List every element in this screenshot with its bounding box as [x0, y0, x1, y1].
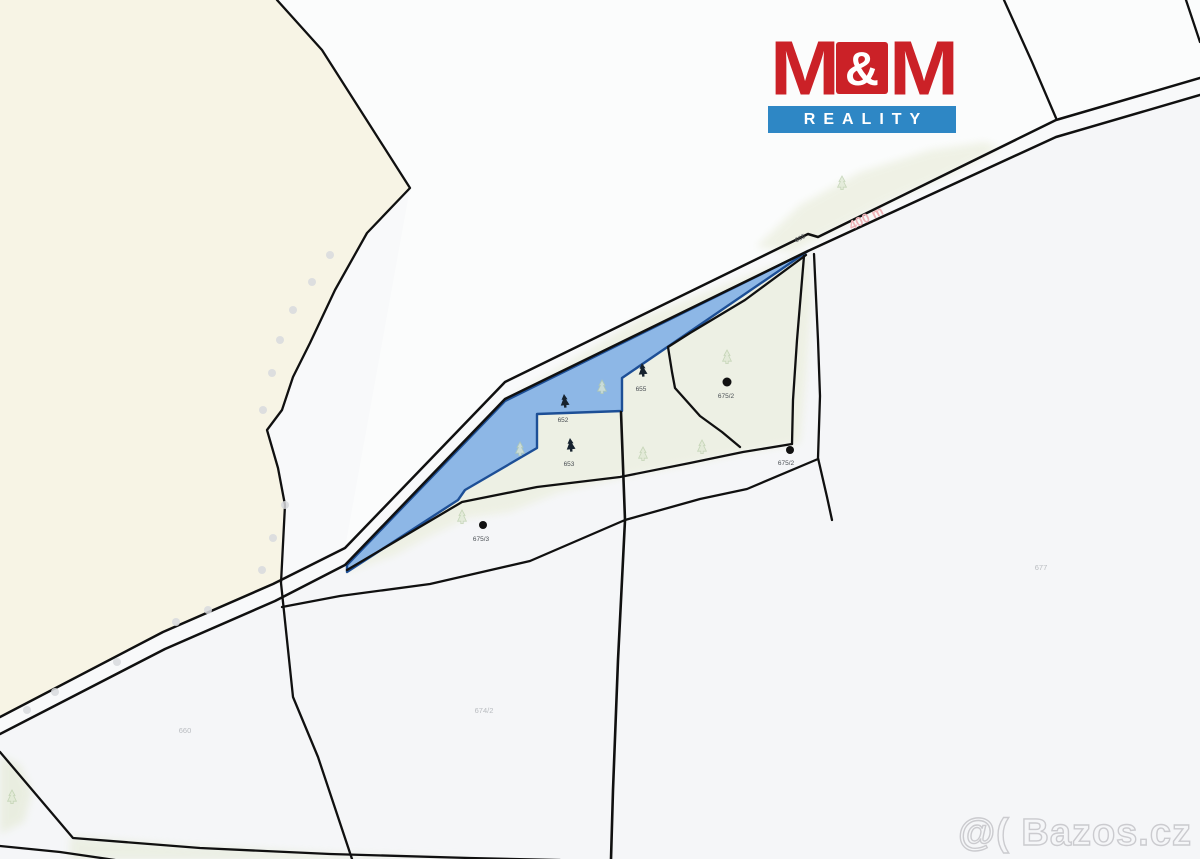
tree-circle-icon [723, 378, 732, 387]
parcel-number: 675/2 [778, 460, 795, 467]
mm-reality-logo: M & M REALITY [768, 31, 956, 133]
bazos-watermark: @( Bazos.cz [958, 812, 1192, 855]
parcel-number-faint: 660 [179, 726, 192, 735]
parcel-number-faint: 674/2 [475, 706, 494, 715]
parcel-number: 655 [636, 386, 647, 393]
parcel-number: 675/2 [718, 393, 735, 400]
logo-letter-m-right: M [889, 34, 954, 102]
parcel-number: 675/3 [473, 536, 490, 543]
tree-circle-icon [786, 446, 794, 454]
logo-ampersand: & [845, 45, 879, 92]
logo-ampersand-box: & [836, 42, 888, 94]
logo-letter-m-left: M [770, 34, 835, 102]
tree-circle-icon [479, 521, 487, 529]
parcel-number: 653 [564, 461, 575, 468]
cadastral-map: 652 653 655 675/2 675/3 675/2 660 674/2 … [0, 0, 1200, 859]
parcel-number-faint: 677 [1035, 563, 1048, 572]
parcel-number: 652 [558, 417, 569, 424]
logo-mm-row: M & M [768, 31, 956, 105]
